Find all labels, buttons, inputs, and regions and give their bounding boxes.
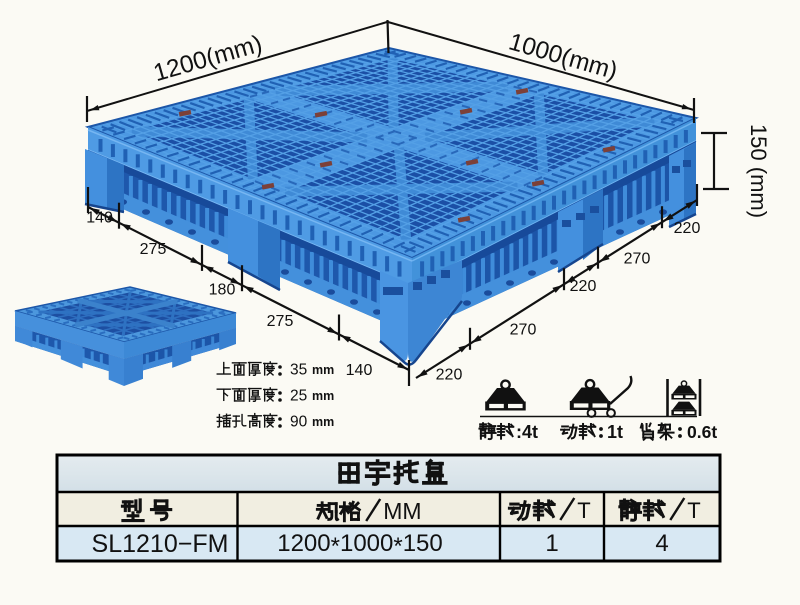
svg-text:180: 180 xyxy=(209,282,236,299)
svg-text:90: 90 xyxy=(290,414,308,431)
svg-text:220: 220 xyxy=(436,367,463,384)
svg-text:1: 1 xyxy=(545,530,558,557)
svg-text:SL1210−FM: SL1210−FM xyxy=(92,530,229,558)
svg-text:220: 220 xyxy=(674,220,701,237)
svg-text:mm: mm xyxy=(312,389,334,403)
svg-text:35: 35 xyxy=(290,362,307,379)
svg-text:275: 275 xyxy=(140,241,167,258)
svg-text:270: 270 xyxy=(624,251,651,268)
svg-text:mm: mm xyxy=(312,415,334,429)
svg-text:MM: MM xyxy=(383,498,421,524)
svg-text:1t: 1t xyxy=(607,422,623,442)
svg-text:T: T xyxy=(577,498,590,523)
svg-text:25: 25 xyxy=(290,388,307,405)
svg-text:270: 270 xyxy=(510,322,537,339)
svg-text::4t: :4t xyxy=(516,422,538,442)
svg-text:140: 140 xyxy=(86,210,113,227)
svg-text:140: 140 xyxy=(346,362,373,379)
svg-text:0.6t: 0.6t xyxy=(687,422,717,442)
svg-text:mm: mm xyxy=(312,363,334,377)
svg-text:1200*1000*150: 1200*1000*150 xyxy=(277,530,443,560)
svg-text:4: 4 xyxy=(655,530,668,557)
svg-text:T: T xyxy=(687,498,700,523)
svg-text:275: 275 xyxy=(267,313,294,330)
svg-text:150 (mm): 150 (mm) xyxy=(746,124,771,218)
svg-text:220: 220 xyxy=(570,278,597,295)
